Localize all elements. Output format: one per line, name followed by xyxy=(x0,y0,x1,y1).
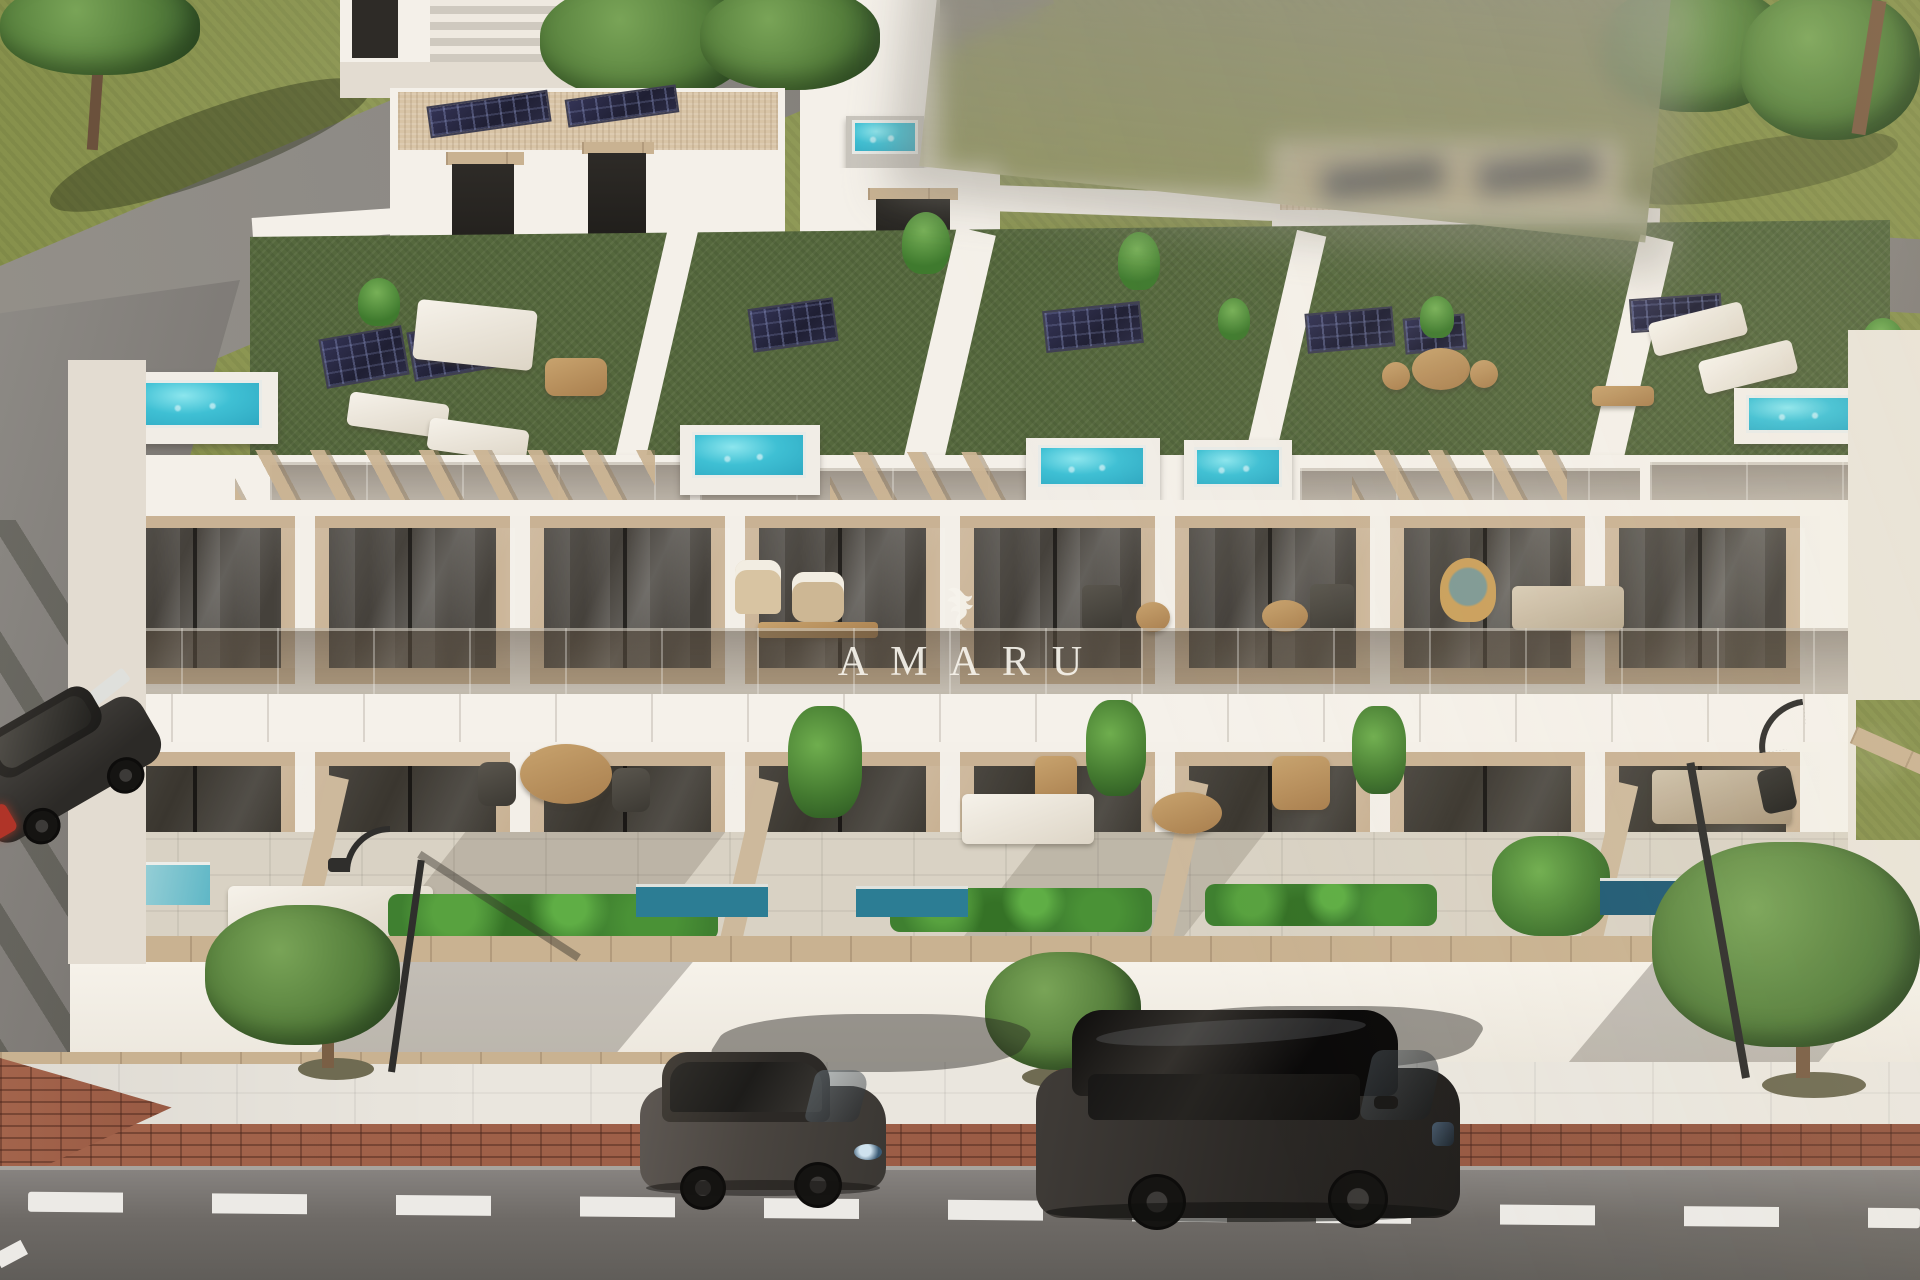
car-headlight xyxy=(854,1144,882,1160)
watermark: AMARU xyxy=(830,586,1090,686)
car-underside-shadow xyxy=(1046,1202,1450,1222)
car-mirror xyxy=(1374,1096,1398,1109)
balcony-sofa xyxy=(1512,586,1624,630)
jacuzzi-pool xyxy=(140,380,262,428)
parked-car-hatchback xyxy=(640,1052,890,1217)
balcony-chair xyxy=(1310,584,1354,632)
sidewalk xyxy=(0,1062,1920,1126)
tree-pit xyxy=(1762,1072,1866,1098)
rear-building-door xyxy=(352,0,398,58)
roof-plant xyxy=(1420,296,1454,338)
car-underside-shadow xyxy=(646,1180,880,1196)
jacuzzi-pool xyxy=(692,432,806,478)
balcony-egg-chair xyxy=(1440,558,1496,622)
patio-chair xyxy=(478,762,516,806)
tree-canopy xyxy=(700,0,880,90)
roof-chair xyxy=(1470,360,1498,388)
penthouse-door xyxy=(588,153,646,245)
watermark-brand-text: AMARU xyxy=(816,638,1104,686)
patio-chair xyxy=(612,768,650,812)
roof-plant xyxy=(358,278,400,326)
roof-sofa-set xyxy=(412,299,538,371)
roof-chair xyxy=(1382,362,1410,390)
car-headlight xyxy=(1432,1122,1454,1146)
solar-panel-flat xyxy=(1304,306,1395,354)
plunge-pool xyxy=(636,884,768,917)
terrace-hedge xyxy=(1205,884,1437,926)
patio-armchair xyxy=(1272,756,1330,810)
roof-plant xyxy=(1118,232,1160,290)
patio-plant xyxy=(1352,706,1406,794)
roof-plant xyxy=(902,212,950,274)
render-scene: AMARU xyxy=(0,0,1920,1280)
roof-dining-table xyxy=(1412,348,1470,390)
rear-hot-tub xyxy=(852,120,918,154)
patio-sofa xyxy=(962,794,1094,844)
street-tree-canopy xyxy=(205,905,400,1045)
tree-canopy xyxy=(1740,0,1920,140)
patio-round-table xyxy=(520,744,612,804)
patio-palm-plant xyxy=(1086,700,1146,796)
roof-bench xyxy=(1592,386,1654,406)
street-tree-canopy xyxy=(1652,842,1920,1047)
parked-car-suv xyxy=(1036,1010,1466,1240)
street-lamp-head xyxy=(328,858,350,872)
winged-griffin-logo-icon xyxy=(943,586,977,636)
roof-plant xyxy=(1218,298,1250,340)
building-left-side-wall xyxy=(68,360,146,964)
patio-palm-plant xyxy=(788,706,862,818)
tree-pit xyxy=(298,1058,374,1080)
banana-plants xyxy=(1492,836,1610,936)
balcony-wicker-chair xyxy=(735,560,781,614)
plunge-pool xyxy=(856,886,968,917)
car-glass xyxy=(1088,1074,1360,1120)
jacuzzi-pool xyxy=(1038,445,1146,487)
jacuzzi-pool xyxy=(1194,447,1282,487)
jacuzzi-pool xyxy=(1746,395,1862,433)
brick-paving-strip xyxy=(0,1124,1920,1170)
car-windshield xyxy=(1359,1050,1444,1120)
balcony-slab xyxy=(75,694,1885,742)
patio-coffee-table xyxy=(1152,792,1222,834)
car-glass xyxy=(670,1062,822,1112)
roof-coffee-table xyxy=(545,358,607,396)
